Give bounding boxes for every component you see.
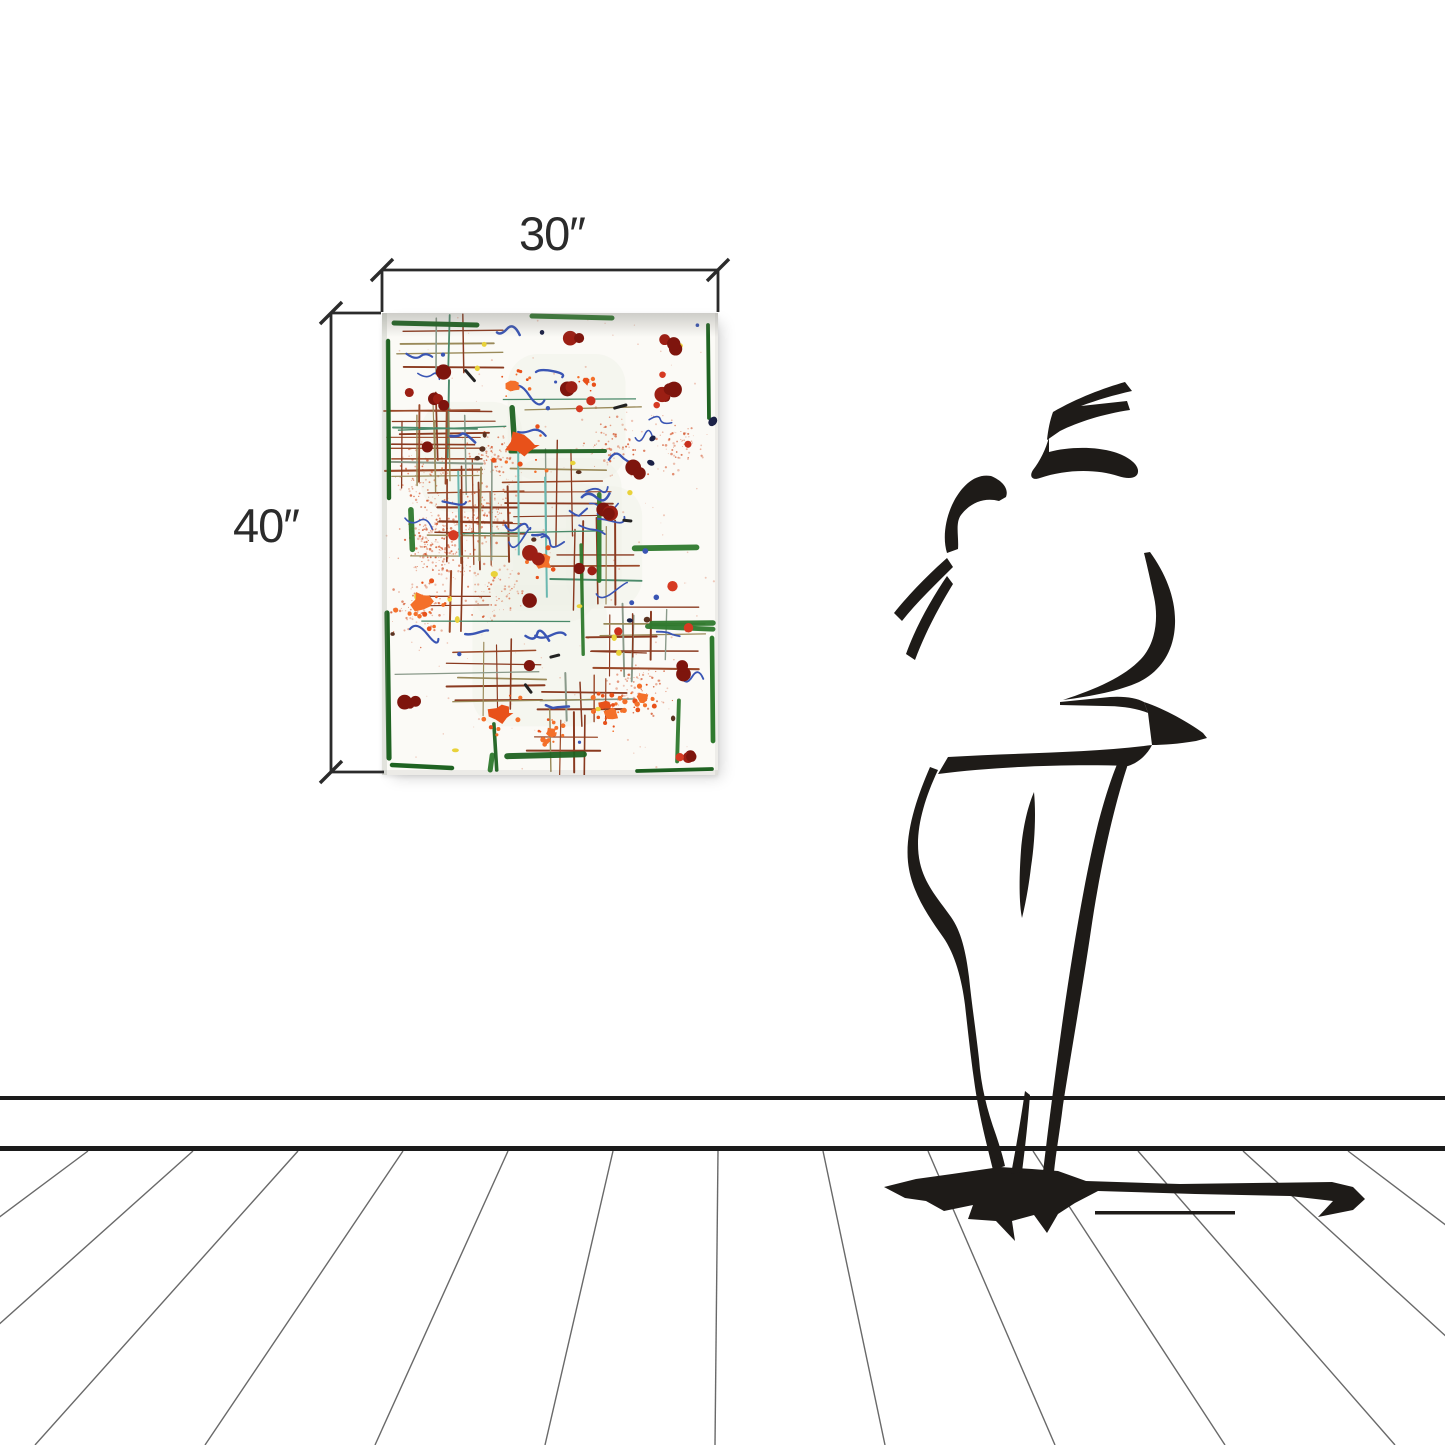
- dimension-annotations: [0, 0, 1445, 1445]
- height-dimension-label: 40″: [186, 502, 346, 549]
- width-dimension: [371, 259, 729, 312]
- width-dimension-label: 30″: [472, 210, 632, 257]
- room-scene: 30″ 40″: [0, 0, 1445, 1445]
